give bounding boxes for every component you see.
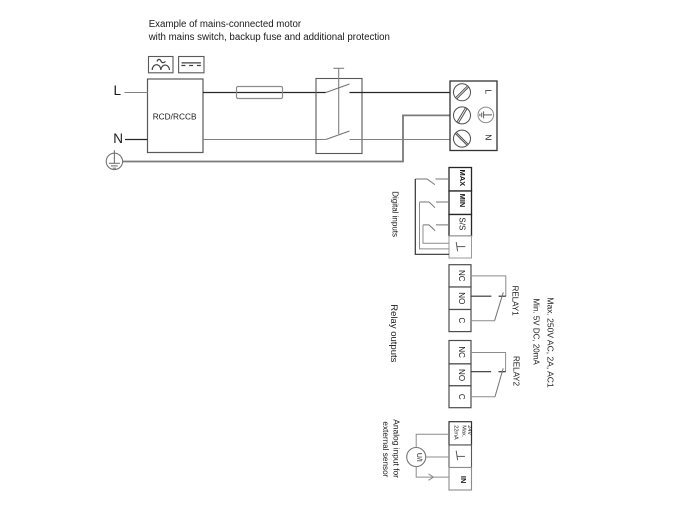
svg-text:Example of mains-connected mot: Example of mains-connected motor [149,19,302,30]
svg-text:C: C [457,318,466,324]
svg-text:Max.: Max. [460,425,466,437]
svg-text:NO: NO [457,369,466,381]
svg-text:RELAY1: RELAY1 [511,286,520,317]
svg-text:with mains switch, backup fuse: with mains switch, backup fuse and addit… [148,32,390,43]
svg-text:N: N [483,134,493,140]
svg-text:Digital inputs: Digital inputs [391,191,400,237]
svg-text:22mA: 22mA [453,425,459,440]
svg-text:MIN: MIN [458,194,467,208]
svg-text:RCD/RCCB: RCD/RCCB [153,112,197,122]
svg-text:U/I: U/I [415,453,422,462]
svg-text:NC: NC [457,270,466,282]
svg-text:MAX: MAX [458,170,467,187]
svg-text:C: C [457,394,466,400]
svg-text:S/S: S/S [458,217,467,230]
svg-text:Min. 5V DC, 20mA: Min. 5V DC, 20mA [532,299,541,366]
svg-text:NO: NO [457,292,466,304]
svg-text:IN: IN [459,476,468,484]
svg-text:Relay outputs: Relay outputs [388,304,399,362]
svg-text:RELAY2: RELAY2 [512,356,521,387]
svg-text:Analog input for: Analog input for [392,419,402,478]
svg-text:N: N [113,131,123,146]
svg-text:Max. 250V AC, 2A, AC1: Max. 250V AC, 2A, AC1 [546,297,556,388]
svg-text:L: L [484,89,494,94]
svg-text:L: L [114,83,122,98]
svg-text:NC: NC [457,346,466,358]
svg-text:external sensor: external sensor [381,421,390,477]
